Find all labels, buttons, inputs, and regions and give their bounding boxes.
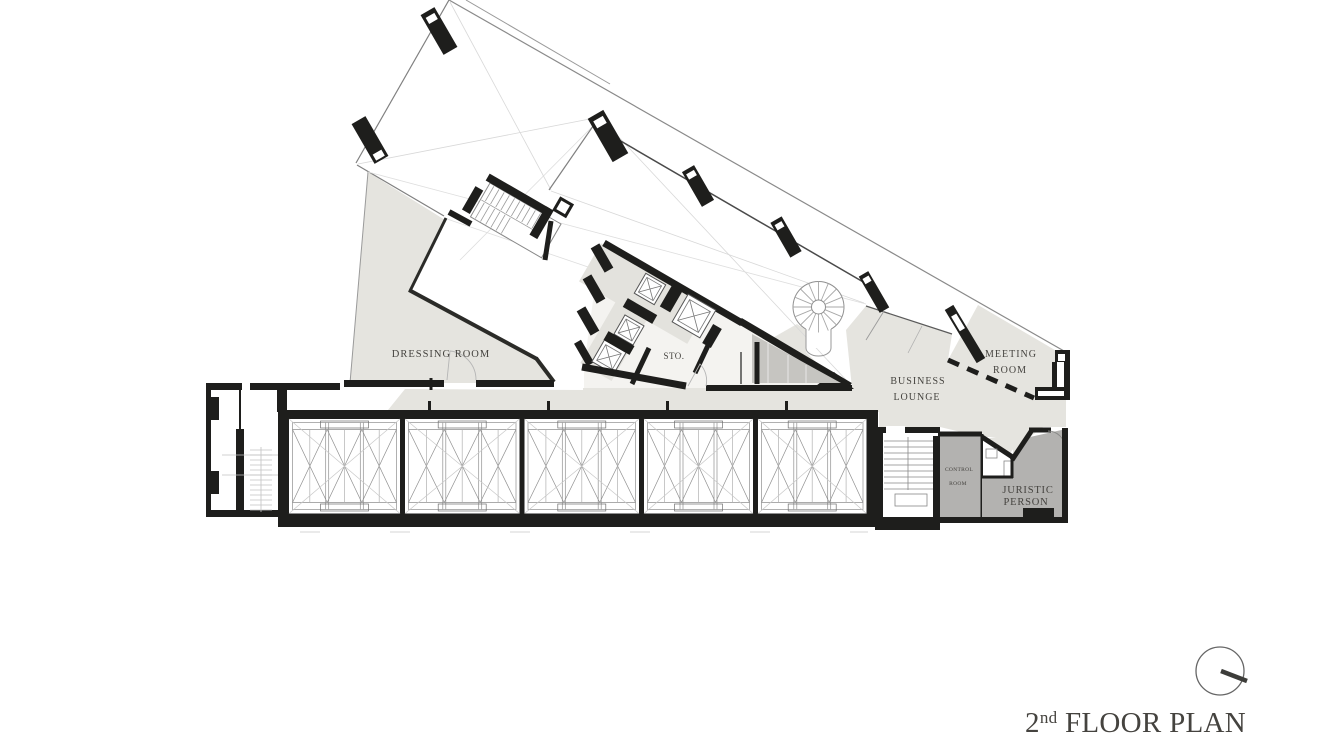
svg-text:STO.: STO. [663,351,684,361]
svg-text:LOUNGE: LOUNGE [893,392,940,403]
svg-text:ROOM: ROOM [949,481,967,487]
svg-text:CONTROL: CONTROL [945,467,973,473]
svg-text:JURISTIC: JURISTIC [1002,485,1053,496]
svg-text:DRESSING ROOM: DRESSING ROOM [392,349,490,360]
svg-text:ROOM: ROOM [993,365,1027,376]
svg-text:2nd FLOOR PLAN: 2nd FLOOR PLAN [1025,707,1246,739]
svg-text:PERSON: PERSON [1003,497,1048,508]
svg-text:BUSINESS: BUSINESS [890,376,945,387]
svg-text:MEETING: MEETING [985,349,1037,360]
